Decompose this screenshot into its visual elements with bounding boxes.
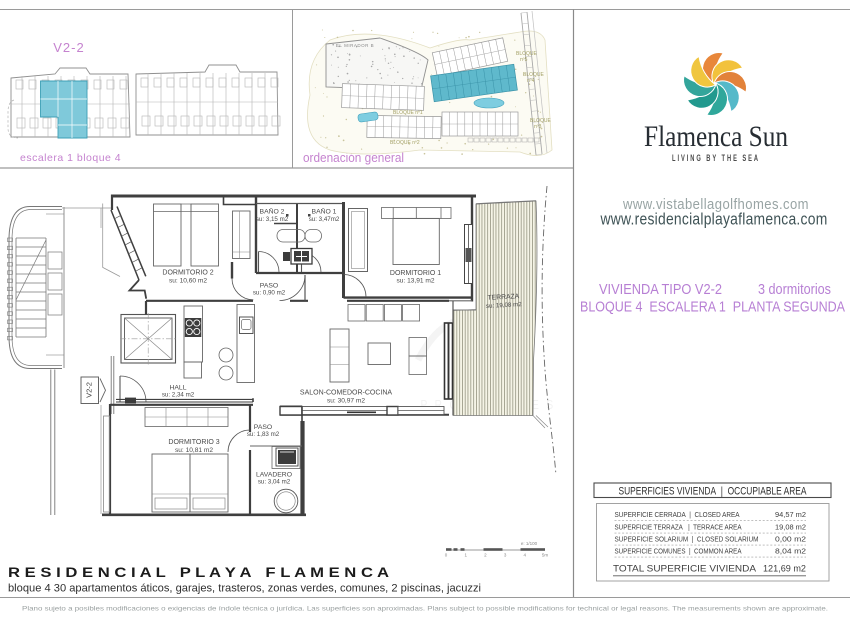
svg-text:HALL: HALL bbox=[169, 385, 186, 392]
svg-text:nº5: nº5 bbox=[520, 57, 528, 63]
svg-text:SUPERFICIE COMUNES | COMMON: SUPERFICIE COMUNES | COMMON AREA bbox=[615, 547, 742, 556]
svg-text:su: 10,60 m2: su: 10,60 m2 bbox=[169, 278, 207, 285]
svg-text:VIVIENDA TIPO V2-2: VIVIENDA TIPO V2-2 bbox=[599, 281, 722, 298]
svg-text:19,08 m2: 19,08 m2 bbox=[775, 523, 806, 532]
svg-text:EL MIRADOR B: EL MIRADOR B bbox=[336, 43, 374, 48]
svg-text:su: 3,47m2: su: 3,47m2 bbox=[309, 216, 340, 223]
svg-text:su: 2,34 m2: su: 2,34 m2 bbox=[162, 392, 195, 399]
svg-text:su: 3,04 m2: su: 3,04 m2 bbox=[258, 479, 291, 486]
svg-text:DORMITORIO 2: DORMITORIO 2 bbox=[162, 270, 213, 277]
svg-text:www.residencialplayaflamenca.c: www.residencialplayaflamenca.com bbox=[600, 211, 828, 229]
svg-text:TOTAL SUPERFICIE VIVIENDA: TOTAL SUPERFICIE VIVIENDA bbox=[613, 564, 757, 575]
svg-text:SALON-COMEDOR-COCINA: SALON-COMEDOR-COCINA bbox=[300, 390, 393, 397]
svg-text:94,57 m2: 94,57 m2 bbox=[775, 510, 806, 519]
svg-text:su: 3,15 m2: su: 3,15 m2 bbox=[256, 216, 289, 223]
svg-text:Plano sujeto a posibles modifi: Plano sujeto a posibles modificaciones o… bbox=[22, 606, 828, 613]
svg-text:nº4: nº4 bbox=[527, 78, 535, 84]
svg-text:3 dormitorios: 3 dormitorios bbox=[758, 281, 831, 298]
svg-text:su: 1,83 m2: su: 1,83 m2 bbox=[247, 431, 280, 438]
svg-text:LAVADERO: LAVADERO bbox=[256, 472, 292, 479]
svg-text:DORMITORIO 3: DORMITORIO 3 bbox=[168, 439, 219, 446]
svg-text:121,69 m2: 121,69 m2 bbox=[763, 564, 806, 575]
svg-text:BAÑO 2: BAÑO 2 bbox=[260, 207, 285, 216]
svg-text:BLOQUE nº2: BLOQUE nº2 bbox=[390, 140, 420, 146]
svg-text:BAÑO 1: BAÑO 1 bbox=[312, 207, 337, 216]
svg-text:su: 0,90 m2: su: 0,90 m2 bbox=[253, 290, 286, 297]
svg-text:V2-2: V2-2 bbox=[84, 382, 93, 398]
svg-text:BLOQUE nº1: BLOQUE nº1 bbox=[393, 110, 423, 116]
svg-text:V2-2: V2-2 bbox=[53, 40, 84, 55]
svg-text:5m: 5m bbox=[542, 553, 549, 558]
svg-text:su: 30,97 m2: su: 30,97 m2 bbox=[327, 398, 365, 405]
svg-text:DORMITORIO 1: DORMITORIO 1 bbox=[390, 270, 441, 277]
svg-text:escalera 1 bloque 4: escalera 1 bloque 4 bbox=[20, 152, 121, 164]
svg-text:SUPERFICIE TERRAZA | TERRAC: SUPERFICIE TERRAZA | TERRACE AREA bbox=[615, 523, 742, 532]
svg-text:LIVING BY THE SEA: LIVING BY THE SEA bbox=[672, 153, 760, 164]
svg-text:nº3: nº3 bbox=[534, 124, 542, 130]
svg-text:e: 1/100: e: 1/100 bbox=[521, 541, 538, 546]
svg-text:SUPERFICIES VIVIENDA | OCCUP: SUPERFICIES VIVIENDA | OCCUPIABLE AREA bbox=[619, 485, 807, 497]
svg-text:bloque 4 30 apartamentos ático: bloque 4 30 apartamentos áticos, garajes… bbox=[8, 583, 481, 595]
svg-text:PASO: PASO bbox=[254, 424, 272, 431]
svg-text:SUPERFICIE SOLARIUM | CLOSED: SUPERFICIE SOLARIUM | CLOSED SOLARIUM bbox=[615, 535, 759, 544]
svg-text:R E S I D E N C I A L P L A: R E S I D E N C I A L P L A Y A F L A M … bbox=[8, 565, 389, 580]
svg-text:su: 10,81 m2: su: 10,81 m2 bbox=[175, 447, 213, 454]
svg-text:Flamenca Sun: Flamenca Sun bbox=[644, 120, 788, 153]
svg-text:BLOQUE 4 ESCALERA 1 PLANTA S: BLOQUE 4 ESCALERA 1 PLANTA SEGUNDA bbox=[580, 299, 845, 316]
svg-text:0,00 m2: 0,00 m2 bbox=[775, 535, 806, 544]
svg-text:SUPERFICIE CERRADA | CLOSED: SUPERFICIE CERRADA | CLOSED AREA bbox=[615, 510, 740, 519]
svg-text:su: 13,91 m2: su: 13,91 m2 bbox=[396, 278, 434, 285]
svg-text:PASO: PASO bbox=[260, 283, 278, 290]
svg-text:8,04 m2: 8,04 m2 bbox=[775, 547, 806, 556]
